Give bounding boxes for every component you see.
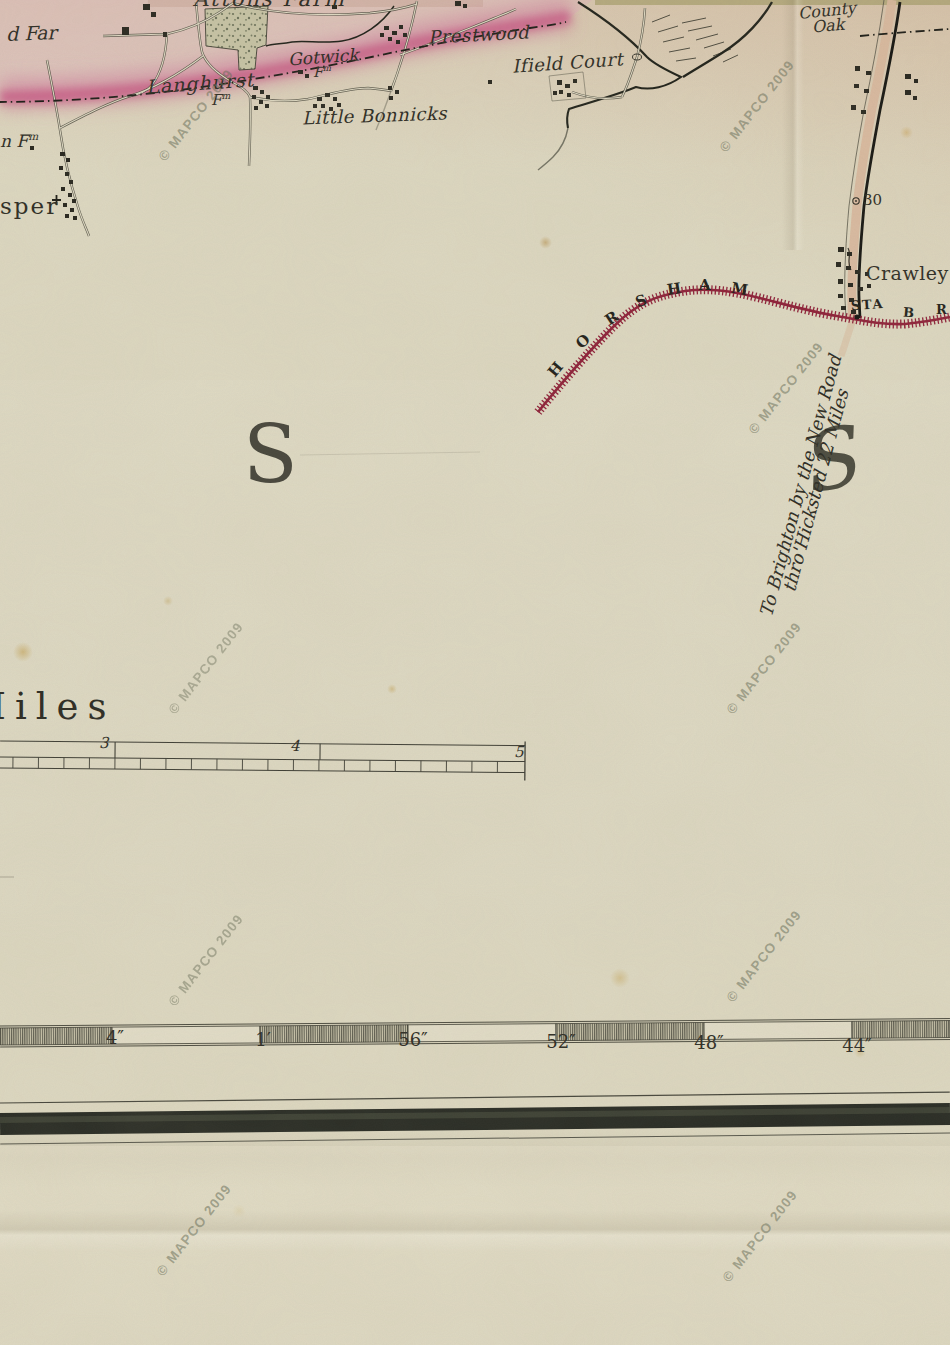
ruler-label: 44″ <box>842 1037 872 1056</box>
scale-number: 5 <box>514 745 524 761</box>
railway-letter: B <box>902 306 914 321</box>
map-linework-svg <box>0 0 950 1345</box>
place-label-d-far: d Far <box>6 23 57 45</box>
railway-letter: H <box>666 281 682 299</box>
scale-number: 4 <box>290 739 300 755</box>
place-label-gotwick-fm: Fm <box>313 64 331 79</box>
ruler-label: 52″ <box>546 1033 576 1052</box>
milestone-label: 30 <box>863 193 882 209</box>
sheet-border <box>0 1092 950 1144</box>
place-label-crawley: Crawley <box>866 264 949 284</box>
place-label-county-oak-line2: Oak <box>811 17 845 37</box>
place-label-n-fm: n Fm <box>0 131 38 151</box>
railway-line <box>538 290 950 412</box>
ruler-label: 48″ <box>694 1034 724 1053</box>
scale-bar <box>0 737 525 781</box>
place-label-attons-farm: Attons Farm <box>193 0 346 10</box>
stream-hachures <box>652 15 738 62</box>
ruler-label: 4″ <box>106 1029 124 1048</box>
longitude-ruler <box>0 1019 950 1047</box>
railway-letter: M <box>730 281 749 299</box>
scale-bar-label: Miles <box>0 688 115 727</box>
map-symbols <box>0 195 860 877</box>
ruler-label: 1′ <box>255 1031 271 1050</box>
ruler-label: 56″ <box>398 1031 428 1050</box>
railway-letter: R <box>936 303 947 317</box>
scale-number: 3 <box>99 736 109 752</box>
county-letter-s-left: S <box>243 413 298 497</box>
place-label-sper: sper <box>0 194 59 218</box>
railway-letter: A <box>699 278 711 294</box>
map-scan: Attons Farm d Far n Fm sper Langhurst Fm… <box>0 0 950 1345</box>
